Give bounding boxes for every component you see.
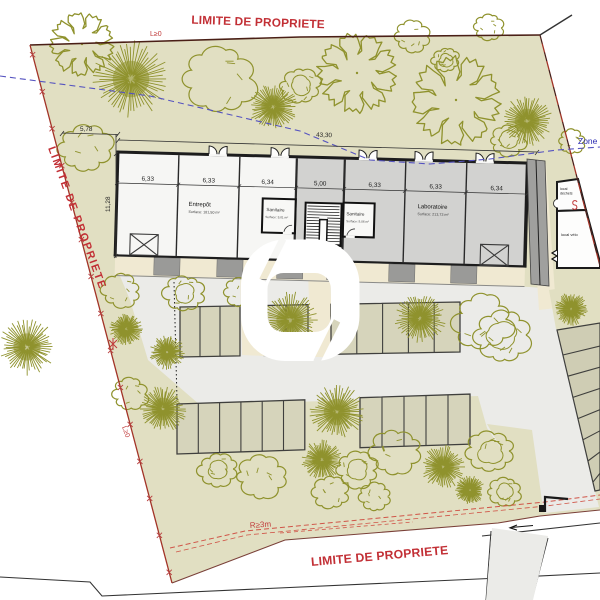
svg-text:Laboratoire: Laboratoire — [418, 204, 449, 211]
svg-text:6,33: 6,33 — [429, 183, 442, 190]
svg-text:Entrepôt: Entrepôt — [188, 202, 211, 209]
svg-text:5,78: 5,78 — [80, 126, 93, 133]
svg-text:Surface: 9,06 m²: Surface: 9,06 m² — [346, 219, 369, 224]
svg-text:6,33: 6,33 — [368, 182, 381, 189]
svg-text:11,28: 11,28 — [105, 196, 112, 212]
svg-text:6,33: 6,33 — [202, 177, 215, 184]
svg-text:local vélo: local vélo — [561, 232, 578, 237]
svg-text:Sanitaire: Sanitaire — [266, 207, 285, 213]
svg-text:6,33: 6,33 — [141, 176, 154, 183]
svg-text:Sanitaire: Sanitaire — [346, 211, 365, 217]
svg-text:L≥0: L≥0 — [150, 31, 162, 38]
svg-text:Zone: Zone — [578, 136, 598, 146]
svg-text:Surface: 9,01 m²: Surface: 9,01 m² — [265, 215, 288, 220]
svg-text:5,00: 5,00 — [314, 180, 327, 187]
svg-text:6,34: 6,34 — [490, 185, 503, 192]
svg-text:43,30: 43,30 — [316, 132, 333, 139]
svg-text:déchets: déchets — [560, 192, 573, 196]
svg-text:6,34: 6,34 — [261, 179, 274, 186]
svg-text:local: local — [560, 187, 568, 191]
svg-text:R≥3m: R≥3m — [250, 520, 272, 530]
